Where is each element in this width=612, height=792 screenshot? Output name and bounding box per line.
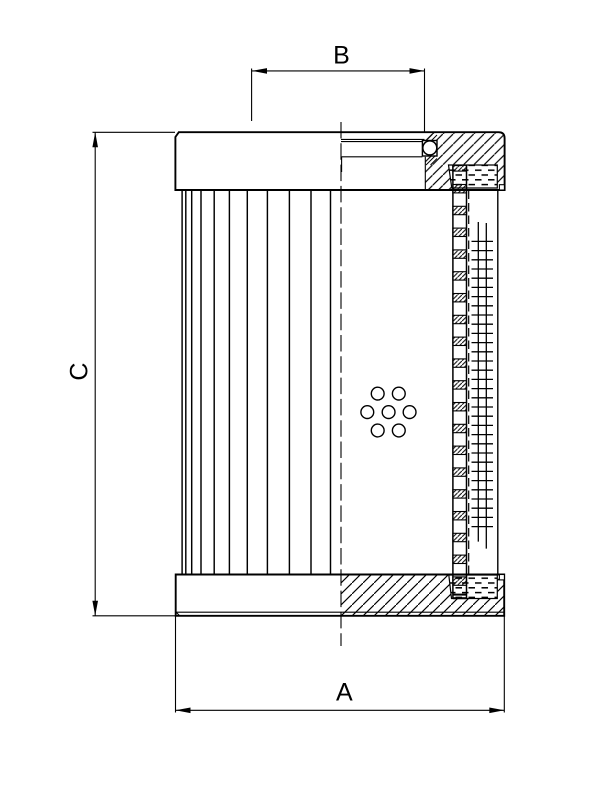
svg-text:B: B [333,42,350,70]
svg-text:A: A [336,679,353,707]
svg-text:C: C [66,363,94,381]
